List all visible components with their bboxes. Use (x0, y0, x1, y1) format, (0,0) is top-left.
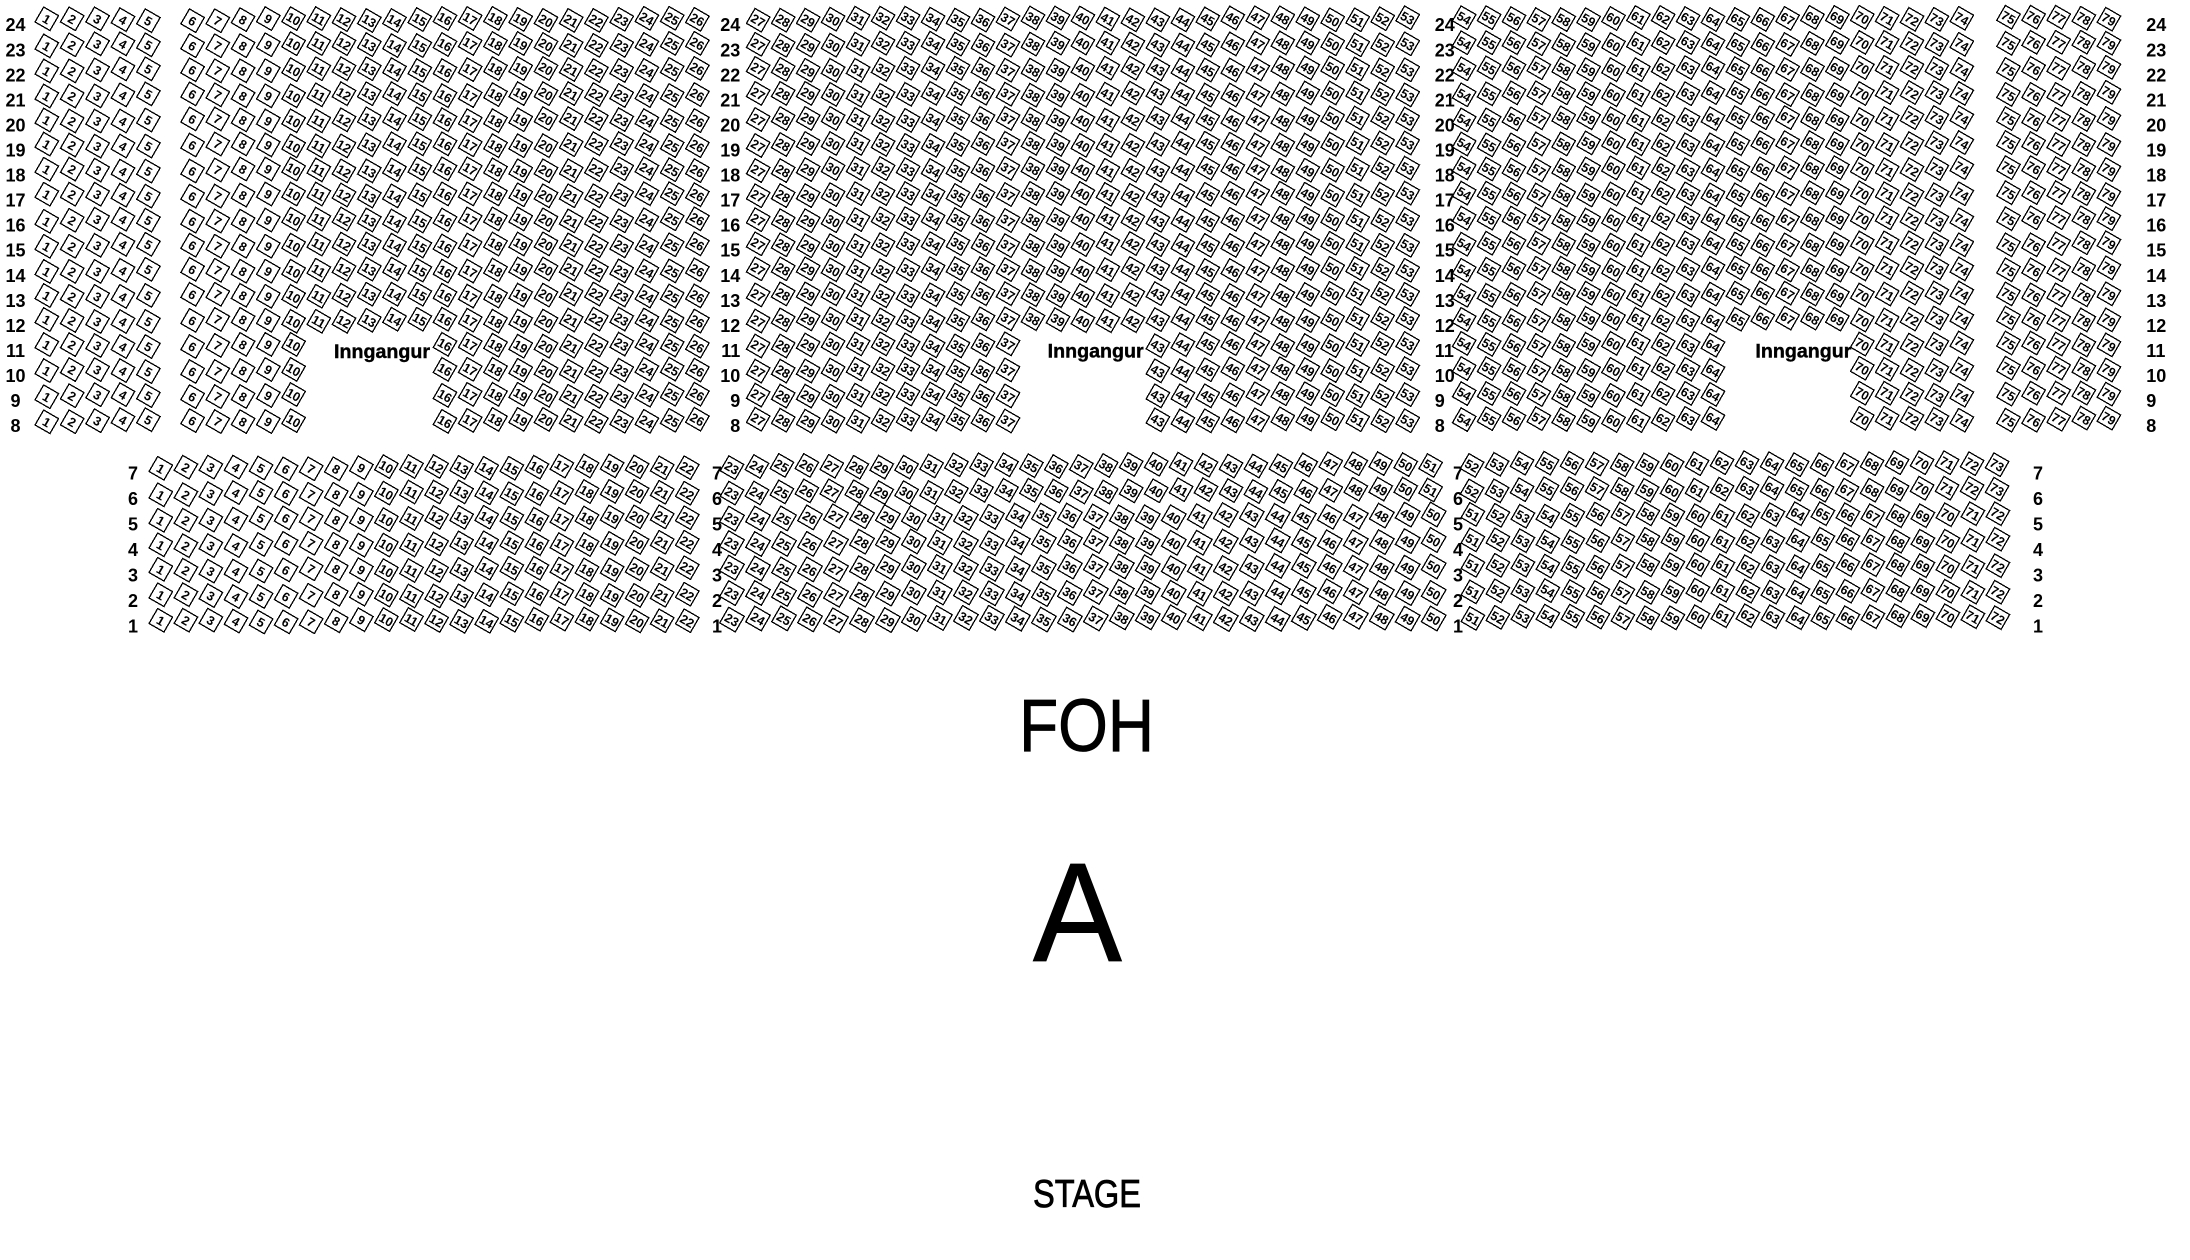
svg-text:24: 24 (720, 15, 740, 35)
svg-text:16: 16 (5, 216, 25, 236)
svg-text:8: 8 (10, 416, 20, 436)
svg-text:6: 6 (2033, 489, 2043, 509)
svg-text:18: 18 (2146, 166, 2166, 186)
svg-text:14: 14 (5, 266, 25, 286)
svg-text:2: 2 (128, 591, 138, 611)
svg-text:A: A (1033, 833, 1122, 991)
svg-text:3: 3 (128, 566, 138, 586)
svg-text:16: 16 (720, 216, 740, 236)
svg-text:19: 19 (1435, 141, 1455, 161)
svg-text:Inngangur: Inngangur (1755, 341, 1852, 362)
svg-text:10: 10 (720, 366, 740, 386)
svg-text:7: 7 (128, 464, 138, 484)
svg-text:12: 12 (1435, 316, 1455, 336)
svg-text:4: 4 (128, 540, 138, 560)
svg-text:23: 23 (720, 40, 740, 60)
svg-text:12: 12 (5, 316, 25, 336)
svg-text:Inngangur: Inngangur (334, 342, 431, 363)
svg-text:15: 15 (2146, 241, 2166, 261)
svg-text:21: 21 (2146, 90, 2166, 110)
svg-text:17: 17 (1435, 191, 1455, 211)
svg-text:15: 15 (1435, 241, 1455, 261)
svg-text:12: 12 (720, 316, 740, 336)
svg-text:22: 22 (1435, 65, 1455, 85)
svg-text:23: 23 (2146, 40, 2166, 60)
svg-text:20: 20 (720, 115, 740, 135)
svg-text:1: 1 (712, 617, 722, 637)
svg-text:21: 21 (720, 90, 740, 110)
svg-text:9: 9 (1435, 391, 1445, 411)
svg-text:STAGE: STAGE (1033, 1173, 1141, 1216)
svg-text:22: 22 (2146, 65, 2166, 85)
svg-text:10: 10 (2146, 366, 2166, 386)
svg-text:13: 13 (2146, 291, 2166, 311)
svg-text:10: 10 (5, 366, 25, 386)
svg-text:3: 3 (2033, 566, 2043, 586)
svg-text:14: 14 (720, 266, 740, 286)
svg-text:9: 9 (2146, 391, 2156, 411)
svg-text:11: 11 (1435, 341, 1454, 361)
svg-text:11: 11 (2146, 341, 2165, 361)
svg-text:4: 4 (712, 540, 722, 560)
svg-text:18: 18 (1435, 166, 1455, 186)
svg-text:2: 2 (2033, 591, 2043, 611)
svg-text:12: 12 (2146, 316, 2166, 336)
svg-text:Inngangur: Inngangur (1048, 342, 1145, 363)
svg-text:14: 14 (1435, 266, 1455, 286)
svg-text:22: 22 (5, 65, 25, 85)
svg-text:9: 9 (730, 391, 740, 411)
svg-text:21: 21 (1435, 90, 1455, 110)
svg-text:16: 16 (2146, 216, 2166, 236)
svg-text:6: 6 (128, 489, 138, 509)
svg-text:7: 7 (712, 464, 722, 484)
svg-text:8: 8 (1435, 416, 1445, 436)
svg-text:9: 9 (10, 391, 20, 411)
svg-text:19: 19 (5, 141, 25, 161)
svg-text:13: 13 (5, 291, 25, 311)
svg-text:20: 20 (5, 115, 25, 135)
svg-text:1: 1 (2033, 617, 2043, 637)
svg-text:6: 6 (712, 489, 722, 509)
svg-text:11: 11 (6, 341, 25, 361)
svg-text:7: 7 (2033, 464, 2043, 484)
svg-text:19: 19 (2146, 141, 2166, 161)
svg-text:20: 20 (2146, 115, 2166, 135)
svg-text:17: 17 (2146, 191, 2166, 211)
svg-text:10: 10 (1435, 366, 1455, 386)
svg-text:22: 22 (720, 65, 740, 85)
svg-text:11: 11 (721, 341, 740, 361)
svg-text:8: 8 (2146, 416, 2156, 436)
svg-text:18: 18 (5, 166, 25, 186)
svg-text:17: 17 (5, 191, 25, 211)
svg-text:21: 21 (5, 90, 25, 110)
svg-text:15: 15 (5, 241, 25, 261)
svg-text:24: 24 (5, 15, 25, 35)
svg-text:20: 20 (1435, 115, 1455, 135)
svg-text:5: 5 (2033, 515, 2043, 535)
svg-text:13: 13 (1435, 291, 1455, 311)
svg-text:24: 24 (2146, 15, 2166, 35)
svg-text:14: 14 (2146, 266, 2166, 286)
svg-text:19: 19 (720, 141, 740, 161)
svg-text:17: 17 (720, 191, 740, 211)
svg-text:1: 1 (128, 617, 138, 637)
svg-text:16: 16 (1435, 216, 1455, 236)
svg-text:FOH: FOH (1019, 684, 1154, 767)
svg-text:23: 23 (5, 40, 25, 60)
svg-text:23: 23 (1435, 40, 1455, 60)
svg-text:4: 4 (2033, 540, 2043, 560)
svg-text:24: 24 (1435, 15, 1455, 35)
svg-text:13: 13 (720, 291, 740, 311)
svg-text:18: 18 (720, 166, 740, 186)
svg-text:8: 8 (730, 416, 740, 436)
svg-text:5: 5 (128, 515, 138, 535)
svg-text:5: 5 (712, 515, 722, 535)
svg-text:15: 15 (720, 241, 740, 261)
